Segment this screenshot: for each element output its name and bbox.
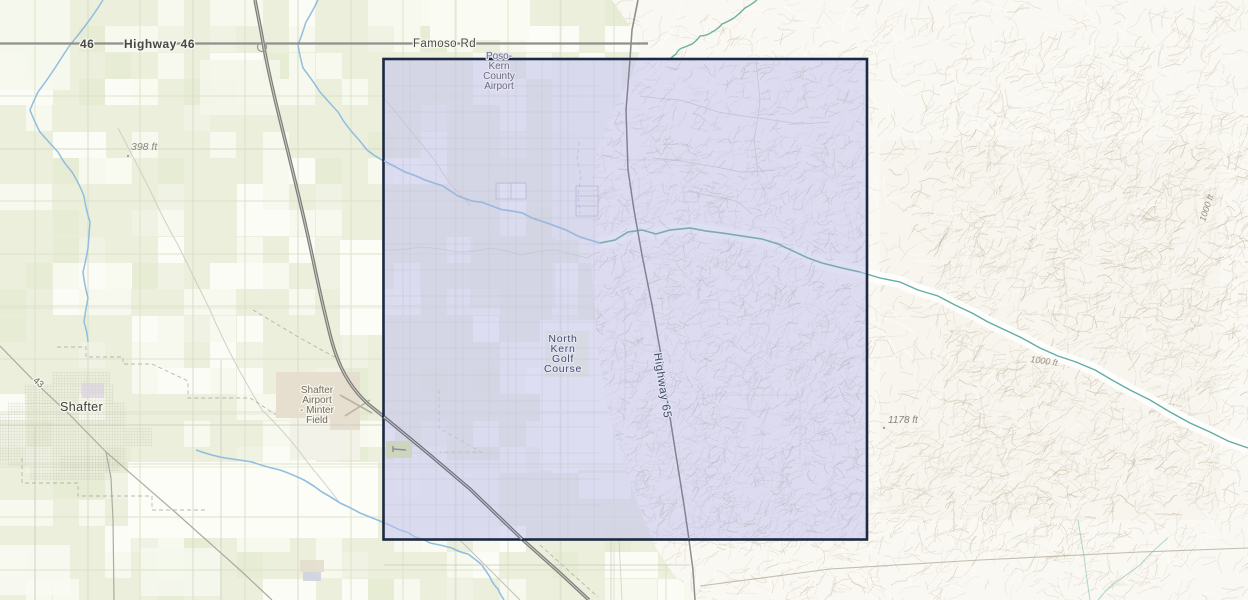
svg-text:Course: Course bbox=[544, 363, 582, 375]
svg-text:46: 46 bbox=[80, 37, 94, 51]
svg-text:398 ft: 398 ft bbox=[131, 141, 158, 153]
svg-text:1178 ft: 1178 ft bbox=[888, 415, 919, 426]
svg-text:Famoso Rd: Famoso Rd bbox=[413, 38, 476, 50]
svg-text:Airport: Airport bbox=[484, 81, 514, 92]
svg-text:Shafter: Shafter bbox=[60, 400, 103, 414]
svg-text:Field: Field bbox=[306, 415, 328, 426]
svg-text:Highway 46: Highway 46 bbox=[124, 37, 195, 51]
